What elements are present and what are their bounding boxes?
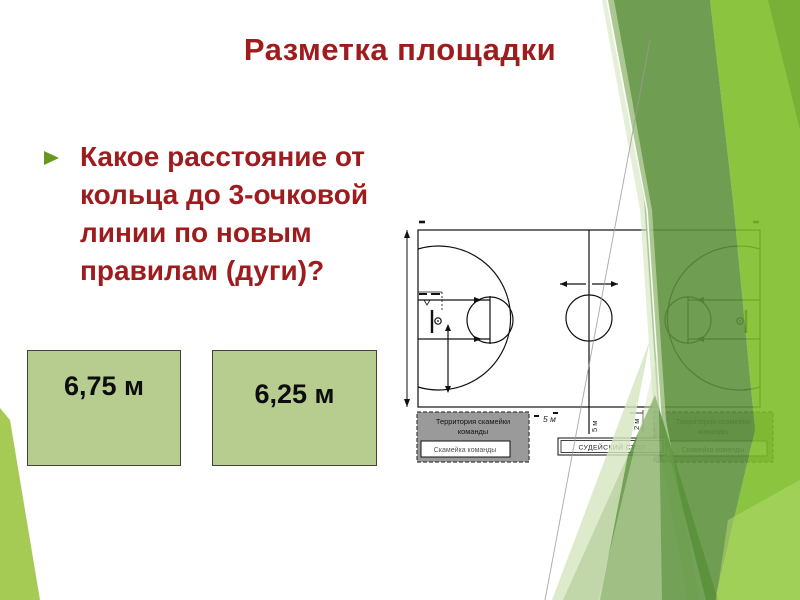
dimension-2m-vertical-label: 2 м: [632, 419, 641, 430]
referee-table: СУДЕЙСКИЙ СТОЛ: [558, 438, 666, 455]
bench-area-right: Территория скамейки команды Скамейка ком…: [654, 412, 773, 462]
bullet-triangle-icon: [44, 151, 59, 165]
bench-area-left: Территория скамейки команды Скамейка ком…: [417, 412, 529, 462]
arrowheads: [404, 230, 741, 407]
basketball-court-diagram: Территория скамейки команды Скамейка ком…: [395, 190, 800, 480]
bench-box-left-label: Скамейка команды: [434, 446, 497, 454]
dimension-5m-vertical-label: 5 м: [590, 421, 599, 432]
answer-box-675[interactable]: 6,75 м: [27, 350, 181, 466]
answer-label: 6,75 м: [64, 371, 144, 402]
bench-area-right-label-line2: команды: [698, 427, 728, 436]
bench-area-left-label-line2: команды: [458, 427, 488, 436]
dimension-5m-label: 5 м: [543, 414, 556, 424]
dimension-annotation-left: [418, 292, 442, 310]
answer-box-625[interactable]: 6,25 м: [212, 350, 377, 466]
bench-area-right-label-line1: Территория скамейки: [676, 417, 750, 426]
decor-bottom-right-overlay: [716, 480, 800, 600]
slide-title: Разметка площадки: [0, 32, 800, 68]
referee-table-label: СУДЕЙСКИЙ СТОЛ: [578, 443, 645, 452]
answer-label: 6,25 м: [254, 379, 334, 410]
slide-background: Территория скамейки команды Скамейка ком…: [0, 0, 800, 600]
basket-right: [737, 310, 746, 333]
question-block: Какое расстояние от кольца до 3-очковой …: [44, 138, 394, 290]
basket-left: [432, 310, 441, 333]
bench-area-left-label-line1: Территория скамейки: [436, 417, 510, 426]
question-text: Какое расстояние от кольца до 3-очковой …: [80, 138, 394, 290]
bench-box-right-label: Скамейка команды: [682, 446, 745, 454]
